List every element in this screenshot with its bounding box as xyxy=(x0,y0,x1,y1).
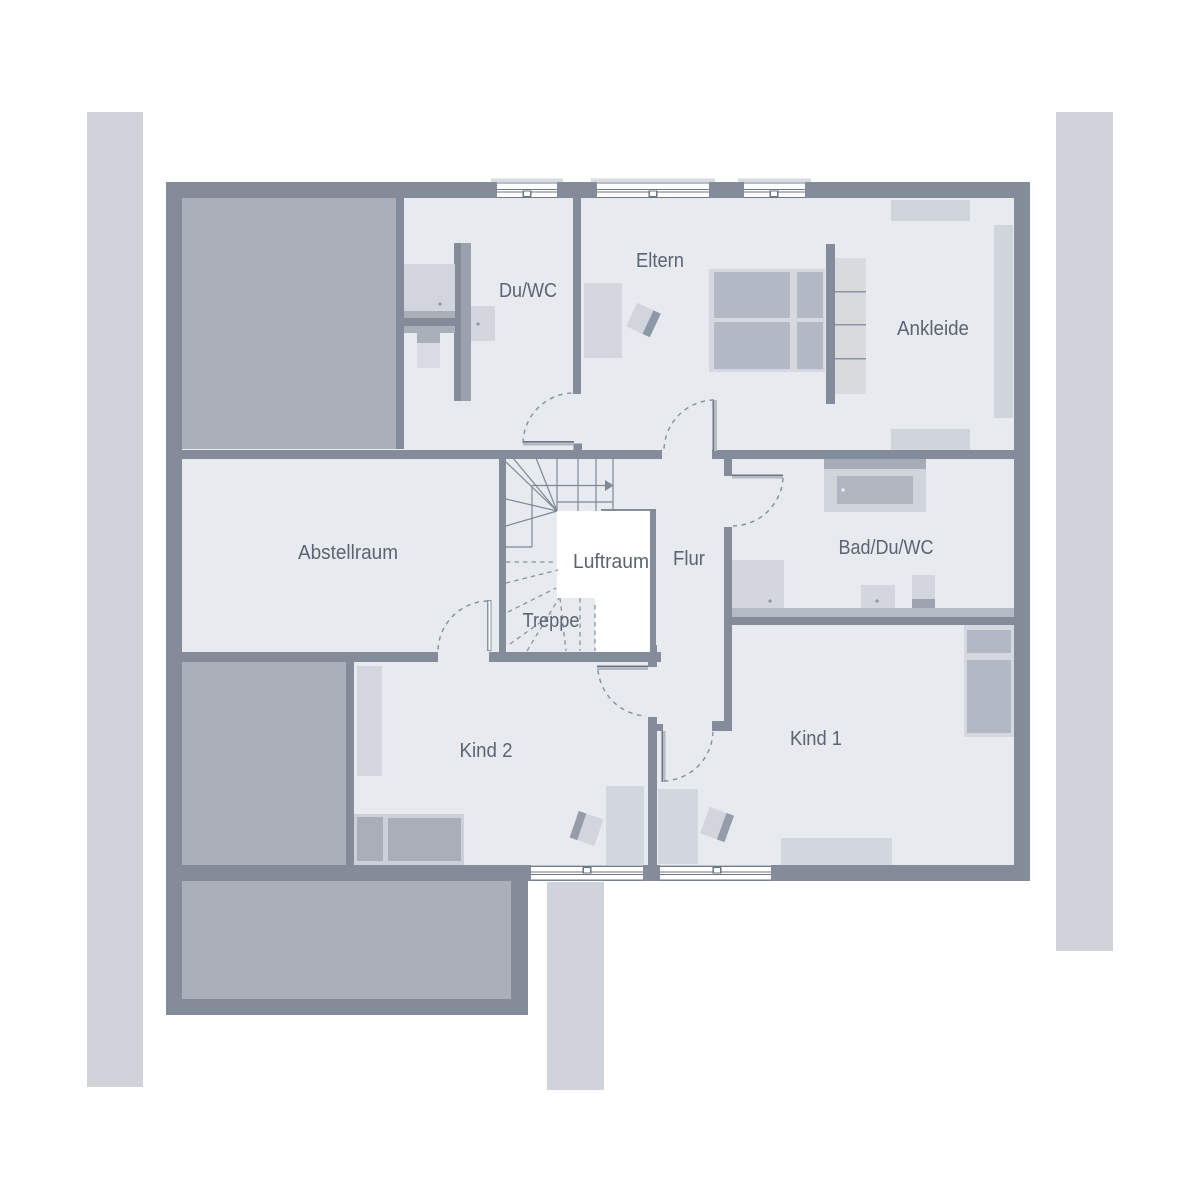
svg-text:Ankleide: Ankleide xyxy=(897,318,969,340)
svg-text:Abstellraum: Abstellraum xyxy=(298,542,398,564)
svg-text:Luftraum: Luftraum xyxy=(573,551,649,573)
svg-text:Flur: Flur xyxy=(673,548,705,570)
svg-text:Kind 2: Kind 2 xyxy=(460,740,513,762)
svg-text:Treppe: Treppe xyxy=(523,610,580,632)
svg-text:Bad/Du/WC: Bad/Du/WC xyxy=(839,537,934,559)
svg-text:Kind 1: Kind 1 xyxy=(790,728,842,750)
svg-text:Du/WC: Du/WC xyxy=(499,280,557,302)
svg-text:Eltern: Eltern xyxy=(636,250,684,272)
